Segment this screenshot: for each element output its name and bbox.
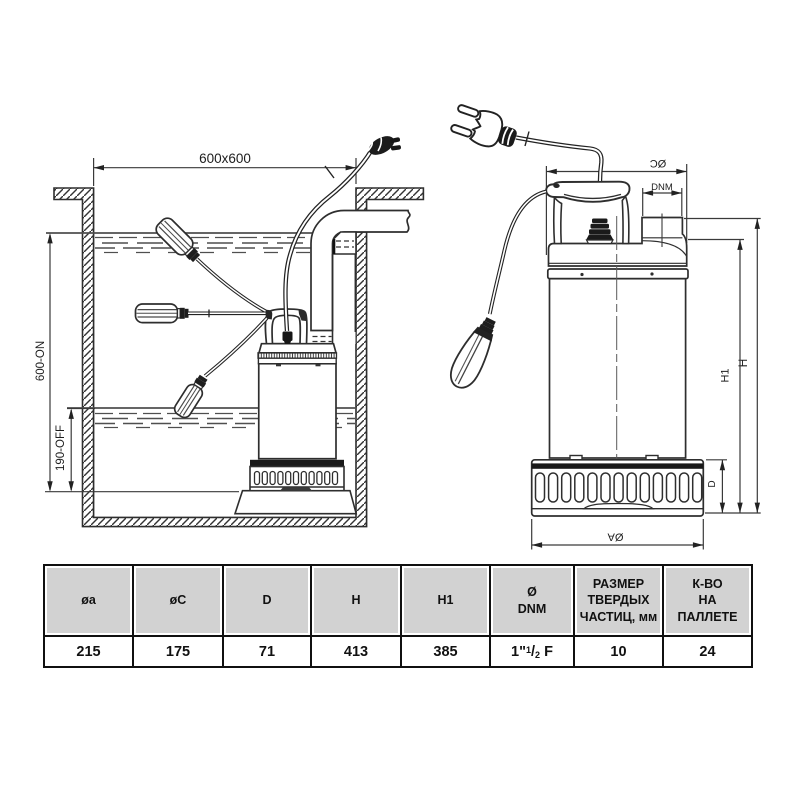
svg-text:D: D bbox=[707, 480, 718, 487]
svg-text:600x600: 600x600 bbox=[199, 151, 251, 166]
svg-text:ØA: ØA bbox=[607, 531, 624, 543]
svg-text:H1: H1 bbox=[720, 368, 732, 382]
svg-text:H: H bbox=[736, 359, 750, 368]
svg-text:190-OFF: 190-OFF bbox=[55, 425, 67, 471]
svg-text:600-ON: 600-ON bbox=[35, 341, 47, 381]
svg-text:ØC: ØC bbox=[650, 157, 667, 169]
svg-text:DNM: DNM bbox=[651, 182, 673, 193]
